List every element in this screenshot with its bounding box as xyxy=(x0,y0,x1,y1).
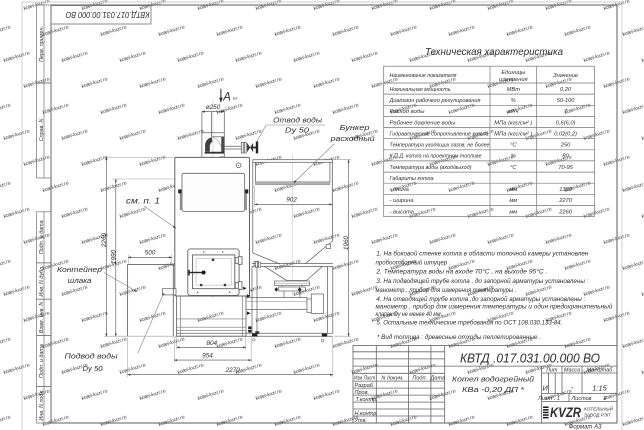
svg-text:Подп. и дата: Подп. и дата xyxy=(39,344,45,378)
svg-text:пробоотборный штуцер .: пробоотборный штуцер . xyxy=(376,258,451,266)
svg-text:- высота: - высота xyxy=(390,209,414,215)
svg-text:шлака: шлака xyxy=(68,276,92,285)
svg-text:МПа (кгс/см² ): МПа (кгс/см² ) xyxy=(494,120,532,126)
svg-text:1990: 1990 xyxy=(110,249,117,264)
svg-text:Н.контр.: Н.контр. xyxy=(355,411,378,417)
svg-text:0,6(6,0): 0,6(6,0) xyxy=(556,120,576,126)
svg-text:расходный: расходный xyxy=(329,134,374,143)
svg-text:Диапазон рабочего регулировани: Диапазон рабочего регулирования xyxy=(389,98,481,104)
svg-text:Номинальная мощность: Номинальная мощность xyxy=(390,87,451,93)
svg-text:Инв. N дубл.: Инв. N дубл. xyxy=(39,265,45,296)
svg-text:3. На подводящей трубе котла: 3. На подводящей трубе котла , до запорн… xyxy=(376,277,588,285)
svg-text:МПа (кгс/см² ): МПа (кгс/см² ) xyxy=(494,131,532,137)
svg-text:2270: 2270 xyxy=(558,198,572,204)
svg-text:К.П.Д. котла на проектном топл: К.П.Д. котла на проектном топливе xyxy=(390,154,482,160)
svg-text:Подвод воды: Подвод воды xyxy=(65,352,119,361)
svg-text:50-100: 50-100 xyxy=(557,98,576,104)
svg-text:- ширина: - ширина xyxy=(390,198,414,204)
svg-text:0,02(0,2): 0,02(0,2) xyxy=(554,131,577,137)
svg-text:500: 500 xyxy=(145,250,156,257)
svg-text:80: 80 xyxy=(562,154,569,160)
svg-text:Т.контр.: Т.контр. xyxy=(356,397,378,403)
svg-text:Подп. и дата: Подп. и дата xyxy=(39,220,45,254)
svg-text:Рабочее давление воды: Рабочее давление воды xyxy=(390,120,457,126)
svg-text:Котел водогрейный: Котел водогрейный xyxy=(452,374,535,383)
svg-text:Формат А3: Формат А3 xyxy=(569,425,602,430)
svg-text:2260: 2260 xyxy=(101,232,108,248)
svg-text:мм: мм xyxy=(509,187,517,193)
svg-text:902: 902 xyxy=(286,197,297,204)
svg-text:мм: мм xyxy=(509,209,517,215)
svg-text:70-95: 70-95 xyxy=(558,165,573,171)
svg-text:Инв. N подл.: Инв. N подл. xyxy=(39,389,45,421)
svg-text:КВТД.017.031.00.000 ВО: КВТД.017.031.00.000 ВО xyxy=(66,10,150,19)
svg-text:Бункер: Бункер xyxy=(340,123,370,132)
svg-text:°С: °С xyxy=(510,165,517,171)
svg-text:клапан Dу не менее 40 мм .: клапан Dу не менее 40 мм . xyxy=(376,311,444,318)
svg-text:Наименование показателя: Наименование показателя xyxy=(390,73,457,79)
svg-text:ø250: ø250 xyxy=(206,104,221,111)
svg-text:2: 2 xyxy=(602,396,606,402)
svg-text:Расход воды: Расход воды xyxy=(390,109,426,115)
svg-text:Взам. инв. N: Взам. инв. N xyxy=(39,302,45,334)
svg-text:Подп.: Подп. xyxy=(412,376,427,382)
svg-text:954: 954 xyxy=(202,352,213,359)
svg-text:Гидравлическое сопротивление к: Гидравлическое сопротивление котла xyxy=(390,131,489,137)
svg-text:Лист . 1: Лист . 1 xyxy=(537,396,560,402)
svg-text:2. Температура воды на входе: 2. Температура воды на входе 70°С , на в… xyxy=(375,267,547,275)
svg-text:Дата: Дата xyxy=(430,376,446,382)
svg-text:ш: ш xyxy=(233,96,237,101)
svg-text:Изм Лист: Изм Лист xyxy=(354,376,375,382)
svg-text:KVZR: KVZR xyxy=(550,405,581,420)
svg-text:мм: мм xyxy=(509,198,517,204)
svg-text:Пров.: Пров. xyxy=(355,390,370,396)
svg-text:1:15: 1:15 xyxy=(592,384,607,393)
svg-text:измерения: измерения xyxy=(499,77,527,83)
svg-text:250: 250 xyxy=(560,143,571,149)
svg-text:Единицы: Единицы xyxy=(501,70,526,76)
svg-text:м³/ч: м³/ч xyxy=(508,109,518,115)
svg-text:И: И xyxy=(543,384,549,393)
svg-text:2260: 2260 xyxy=(558,209,572,215)
svg-text:Dy 50: Dy 50 xyxy=(285,126,310,135)
svg-text:манометр , прибор для измерен: манометр , прибор для измерения температ… xyxy=(376,303,613,311)
svg-text:0,20: 0,20 xyxy=(560,87,572,93)
svg-text:1380: 1380 xyxy=(559,187,572,193)
svg-text:Техническая характеристика: Техническая характеристика xyxy=(425,47,563,58)
svg-text:КВТД .017.031.00.000 ВО: КВТД .017.031.00.000 ВО xyxy=(460,350,600,365)
svg-text:5. Остальные технические треб: 5. Остальные технические требования по О… xyxy=(376,318,562,326)
svg-text:Масса: Масса xyxy=(564,367,580,373)
svg-text:%: % xyxy=(511,98,516,104)
svg-text:А: А xyxy=(222,92,231,104)
svg-text:Листов: Листов xyxy=(570,396,591,402)
svg-text:Перв. примен.: Перв. примен. xyxy=(39,26,45,62)
svg-text:Утв.: Утв. xyxy=(354,418,368,424)
svg-text:4. На отводящей трубе котла ,: 4. На отводящей трубе котла ,до запорной… xyxy=(376,295,585,303)
svg-text:манометр , прибор для измерен: манометр , прибор для измерения температ… xyxy=(376,286,517,294)
svg-text:МВт: МВт xyxy=(507,87,521,93)
svg-text:КВа -0,20 ДП *: КВа -0,20 ДП * xyxy=(462,385,525,394)
svg-text:Разраб.: Разраб. xyxy=(355,383,375,389)
svg-text:%: % xyxy=(511,154,516,160)
svg-text:1960: 1960 xyxy=(343,235,350,250)
svg-text:Отвод воды: Отвод воды xyxy=(273,116,323,125)
svg-text:Значение: Значение xyxy=(553,73,578,79)
svg-text:КОТЕЛЬНЫЙ: КОТЕЛЬНЫЙ xyxy=(584,405,614,412)
svg-text:ЗАВОД РЭП: ЗАВОД РЭП xyxy=(584,413,611,418)
svg-text:°С: °С xyxy=(510,143,517,149)
svg-text:2270: 2270 xyxy=(225,367,241,374)
svg-text:Контейнер: Контейнер xyxy=(57,265,102,274)
svg-text:* Вид топлива : древесные от: * Вид топлива : древесные отходы пеллети… xyxy=(377,333,541,341)
svg-text:Температура воды (вход/выход): Температура воды (вход/выход) xyxy=(390,165,472,171)
svg-text:Температура уходящих газов, не: Температура уходящих газов, не более xyxy=(390,143,490,149)
svg-text:см. п. 1: см. п. 1 xyxy=(126,197,160,206)
svg-text:N докум.: N докум. xyxy=(381,376,403,382)
svg-text:804: 804 xyxy=(206,340,217,347)
svg-text:Габариты котла: Габариты котла xyxy=(390,176,434,182)
svg-text:Масштаб: Масштаб xyxy=(587,367,614,373)
svg-text:Лит: Лит xyxy=(545,367,558,373)
svg-text:Dy 50: Dy 50 xyxy=(83,364,104,373)
svg-text:- длина: - длина xyxy=(390,187,409,193)
svg-text:Справ. N: Справ. N xyxy=(39,119,45,142)
svg-text:1. На боковой стенке котла в: 1. На боковой стенке котла в области топ… xyxy=(376,250,588,258)
